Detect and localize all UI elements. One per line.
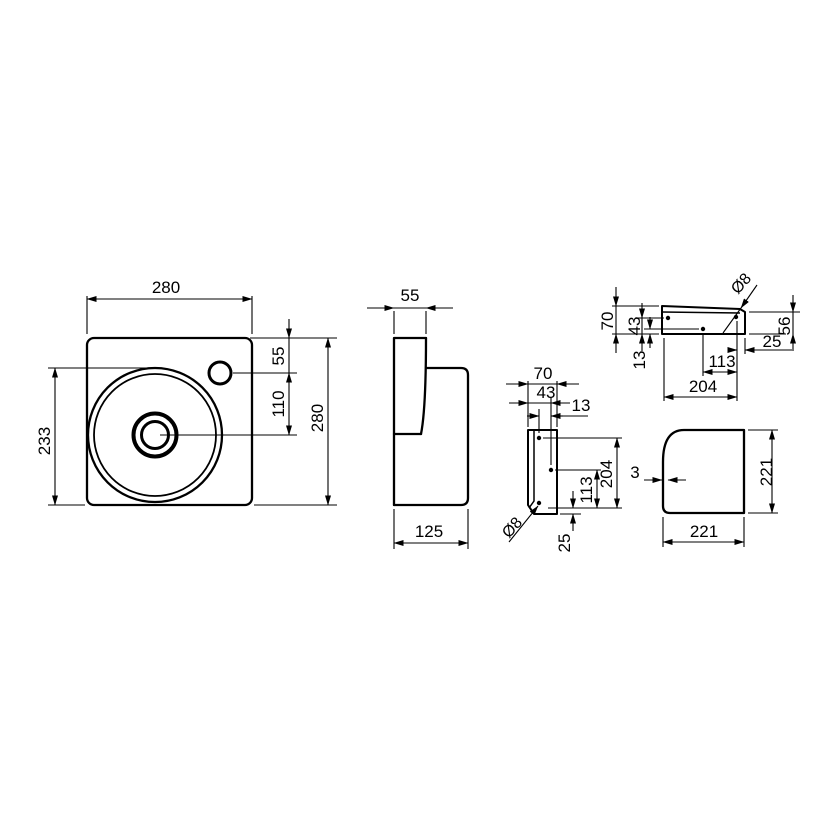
dim-bracket-hole-span: 113 [703, 352, 737, 372]
dim-label: 56 [775, 317, 794, 336]
dim-label: 43 [537, 383, 556, 402]
dim-label: 125 [415, 522, 443, 541]
dim-bowl-to-bottom: 233 [35, 368, 55, 505]
dim-label: 43 [625, 317, 644, 336]
dim-bracket-hole-span: 113 [577, 470, 597, 508]
dim-label: 113 [577, 476, 596, 503]
dim-side-depth: 125 [394, 522, 468, 543]
dim-tap-to-bowl-center: 110 [269, 373, 289, 435]
dim-label: 13 [572, 396, 591, 415]
basin-body-outline [394, 368, 468, 505]
dim-tap-from-top: 55 [269, 319, 289, 373]
dim-label: 113 [708, 352, 735, 371]
dim-label: 204 [689, 377, 717, 396]
dim-label: Ø8 [499, 514, 526, 541]
dim-bracket-width: 70 [598, 287, 617, 353]
dim-label: 221 [690, 522, 718, 541]
dim-label: 55 [401, 286, 420, 305]
basin-plan-view: 280 280 55 110 233 [35, 278, 337, 505]
dim-label: 280 [308, 404, 327, 432]
dim-label: 70 [534, 364, 553, 383]
dim-bracket-length: 204 [597, 438, 617, 508]
bracket-outline [528, 430, 557, 514]
mounting-hole [537, 436, 541, 440]
dim-label: 25 [555, 534, 574, 553]
bracket-top-view: 70 43 13 204 113 25 [598, 270, 800, 401]
technical-drawing-canvas: 280 280 55 110 233 [0, 0, 830, 830]
basin-side-outline [394, 338, 426, 505]
dim-bracket-hole-offset: 43 [509, 383, 570, 403]
dim-label: 110 [269, 390, 288, 417]
basin-back-view: 3 221 221 [630, 430, 778, 547]
basin-back-outline [663, 430, 744, 513]
dim-back-width: 221 [663, 522, 744, 542]
dim-label: 70 [598, 312, 617, 331]
basin-apron-edge [421, 338, 426, 434]
dim-bracket-width: 70 [506, 364, 579, 384]
mounting-hole [537, 501, 541, 505]
dim-bracket-hole-offset: 43 [625, 303, 644, 351]
mounting-hole [666, 316, 670, 320]
bracket-fold-line [662, 312, 740, 313]
dim-label: 280 [152, 278, 180, 297]
dim-label: 233 [35, 427, 54, 455]
mounting-hole [549, 468, 553, 472]
dim-label: 3 [630, 463, 639, 482]
washbasin-dimension-drawing: 280 280 55 110 233 [0, 0, 830, 830]
dim-label: 13 [630, 351, 649, 370]
dim-label: 221 [757, 458, 776, 486]
dim-plan-height: 280 [308, 338, 328, 505]
mounting-hole [701, 327, 705, 331]
dim-back-height: 221 [757, 430, 776, 513]
basin-side-view: 55 125 [367, 286, 468, 549]
bracket-front-view: 70 43 13 204 113 25 Ø [499, 364, 622, 552]
dim-label: 55 [269, 347, 288, 366]
dim-side-rim: 55 [367, 286, 453, 308]
dim-plan-width: 280 [87, 278, 252, 299]
dim-bracket-length: 204 [664, 377, 737, 397]
dim-label: 204 [597, 460, 616, 488]
